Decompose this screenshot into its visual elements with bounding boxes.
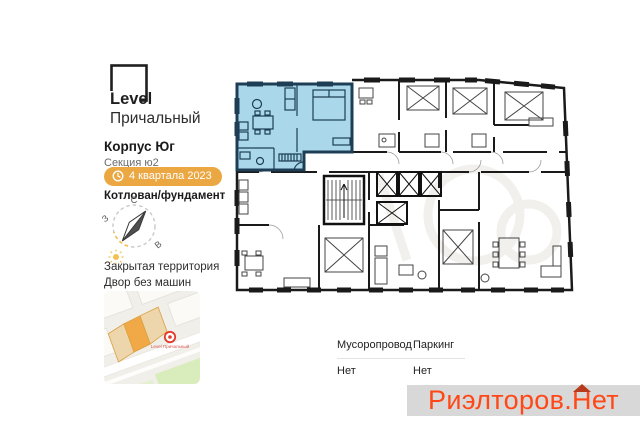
floor-plan <box>229 60 579 300</box>
feature-closed-territory: Закрытая территория <box>104 261 219 273</box>
details-table: Мусоропровод Паркинг Нет Нет <box>337 339 465 377</box>
feature-no-cars: Двор без машин <box>104 277 191 289</box>
completion-badge: 4 квартала 2023 <box>104 167 222 186</box>
building-title: Корпус Юг <box>104 139 175 154</box>
compass-north-label: С <box>131 195 138 205</box>
site-watermark-logo: Риэлторов.Нет <box>407 385 640 416</box>
site-logo-text: Риэлторов. <box>428 385 572 416</box>
roof-icon <box>573 384 591 392</box>
logo-brand-text: Level <box>110 90 152 108</box>
compass: С З В <box>99 194 171 266</box>
details-divider <box>337 358 465 359</box>
developer-logo: Level Причальный <box>110 64 220 128</box>
map-marker-label: Level Причальный <box>151 343 190 349</box>
site-logo-house-letter: Н <box>572 385 592 416</box>
stair-core <box>324 176 364 224</box>
location-map: Level Причальный <box>104 291 200 384</box>
completion-badge-label: 4 квартала 2023 <box>129 170 212 182</box>
highlighted-apartment <box>237 84 352 170</box>
listing-image: { "sidebar": { "logo": { "brand": "Level… <box>0 0 640 426</box>
details-col1-value: Нет <box>337 365 413 377</box>
logo-project-text: Причальный <box>110 110 201 127</box>
details-col2-label: Паркинг <box>413 339 465 351</box>
watermark <box>379 169 557 261</box>
compass-east-label: В <box>153 239 164 251</box>
details-col2-value: Нет <box>413 365 465 377</box>
compass-west-label: З <box>100 213 110 224</box>
compass-needle <box>118 207 151 244</box>
clock-icon <box>112 170 124 182</box>
details-col1-label: Мусоропровод <box>337 339 413 351</box>
